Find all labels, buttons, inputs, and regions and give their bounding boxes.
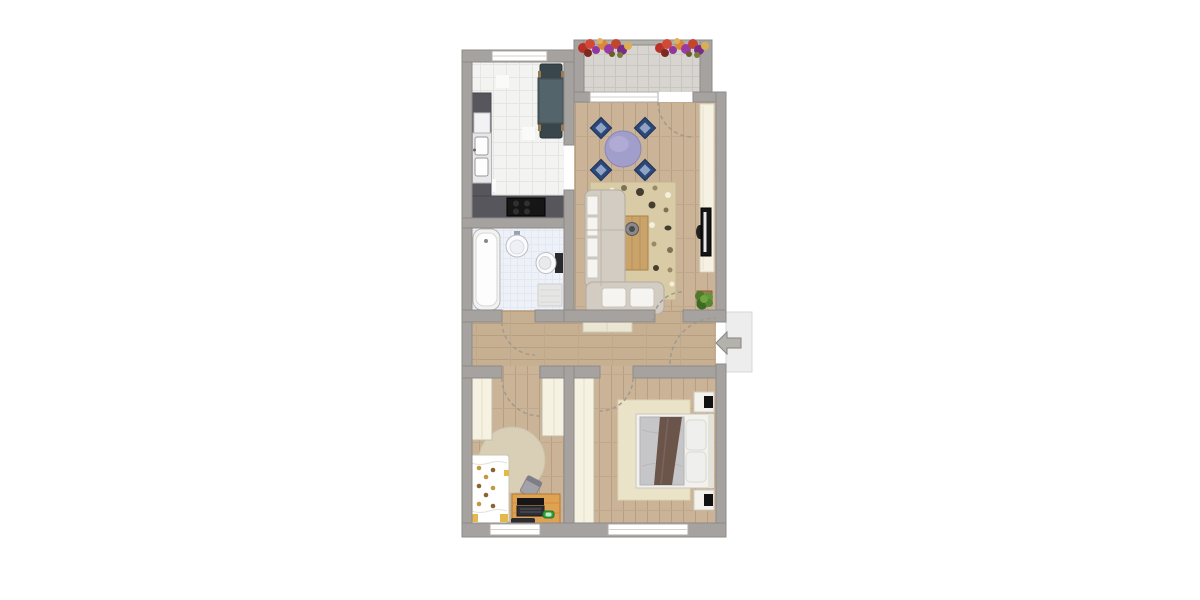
balcony-door-sill <box>590 92 658 102</box>
bed-accent <box>500 514 508 522</box>
wall-bath-hall-left <box>462 310 502 322</box>
pillow <box>686 420 706 450</box>
kitchen-chair <box>540 64 562 79</box>
wall-bath-living <box>564 190 574 312</box>
faucet <box>473 149 476 152</box>
kids-room-window <box>490 524 540 535</box>
kitchen-sink <box>473 133 492 183</box>
wall-living-top-left <box>574 92 590 102</box>
potted-plant <box>695 291 713 310</box>
sofa-seat-cushion <box>602 288 626 307</box>
sofa-pillow <box>587 217 598 236</box>
headboard <box>708 414 714 488</box>
kitchen-chair <box>540 123 562 138</box>
double-bed <box>636 414 714 488</box>
toilet <box>536 253 563 274</box>
sofa-pillow <box>587 238 598 257</box>
wall-kitchen-right <box>564 62 574 145</box>
toy-car <box>543 511 554 518</box>
sofa-pillow <box>587 259 598 278</box>
bedroom-window <box>608 524 688 535</box>
bed-accent <box>504 470 509 476</box>
wall-outer-right-lower <box>716 364 726 537</box>
laptop <box>517 498 544 516</box>
drain <box>484 239 488 243</box>
wall-kitchen-bath <box>462 218 574 228</box>
dish-rack <box>474 113 490 133</box>
wall-outer-left <box>462 50 472 537</box>
floor-plan-canvas <box>0 0 1200 600</box>
kids-bed <box>469 455 509 523</box>
nightstand-top <box>694 392 714 412</box>
wall-outer-right-upper <box>716 92 726 318</box>
cooktop <box>507 198 545 216</box>
sofa-seat-cushion <box>630 288 654 307</box>
bathtub <box>473 229 500 310</box>
kitchen-window <box>492 51 547 61</box>
sofa-pillow <box>587 196 598 215</box>
kitchen-table-set <box>538 64 564 138</box>
pillow <box>686 452 706 482</box>
wall-kids-bedroom-divider <box>564 366 574 523</box>
wall-living-hall-right <box>683 310 726 322</box>
floor-plan <box>0 0 1200 600</box>
bath-mat <box>538 284 562 306</box>
nightstand-bottom <box>694 490 714 510</box>
wall-hall-kids <box>462 366 502 378</box>
wall-living-hall-left <box>564 310 655 322</box>
wall-hall-bedroom <box>633 366 716 378</box>
